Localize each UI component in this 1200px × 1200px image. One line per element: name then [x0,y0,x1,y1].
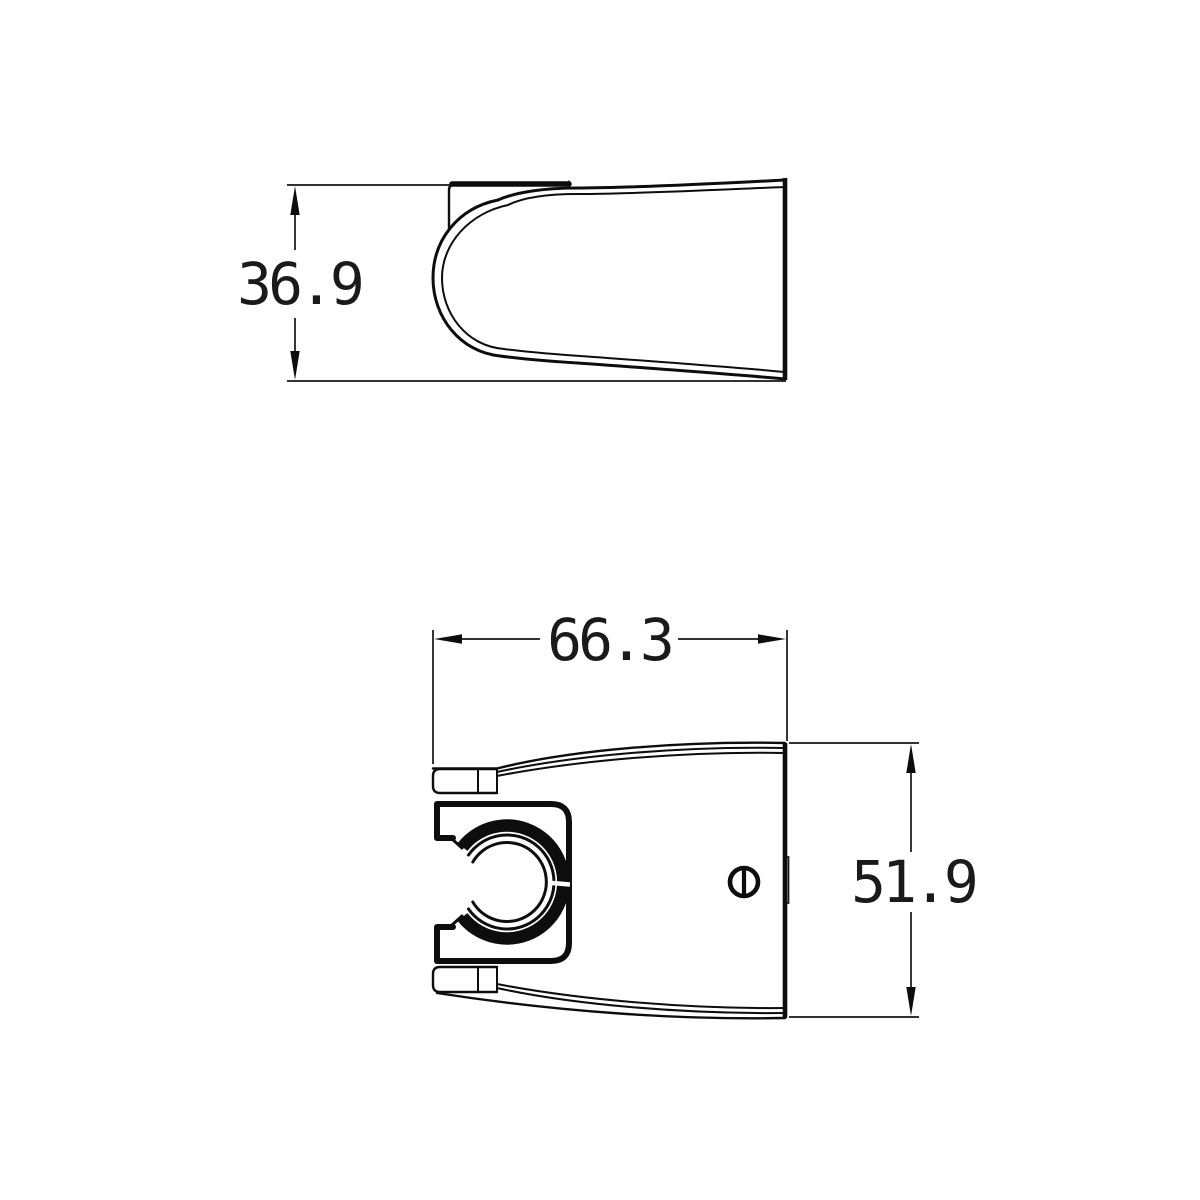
dim-width-arrow-left-icon [434,634,462,643]
front-clamp-ring-inner [473,842,547,921]
dim-depth-arrow-down-icon [290,351,299,380]
side-view [433,178,785,380]
dim-width-arrow-right-icon [758,634,786,643]
front-top-tab-dividers [478,769,497,793]
front-top-tab [433,769,497,793]
dim-width-text: 66.3 [547,606,671,674]
dimension-height: 51.9 [789,743,975,1017]
dim-height-arrow-up-icon [906,744,915,773]
dim-height-text: 51.9 [851,848,975,916]
dimension-depth: 36.9 [237,185,786,381]
dim-height-arrow-down-icon [906,987,915,1016]
drawing-canvas: 36.9 [0,0,1200,1200]
side-outline [433,180,785,379]
front-clamp-ring-mid [469,835,554,929]
front-bottom-tab-dividers [478,967,497,992]
dimension-width: 66.3 [433,606,787,764]
front-clamp-joint-gap [552,883,570,885]
dim-depth-arrow-up-icon [290,186,299,215]
front-bottom-tab [433,967,497,992]
technical-drawing: 36.9 [0,0,1200,1200]
dim-depth-text: 36.9 [237,250,361,318]
side-inner-contour [442,187,785,372]
front-view [433,743,789,1019]
